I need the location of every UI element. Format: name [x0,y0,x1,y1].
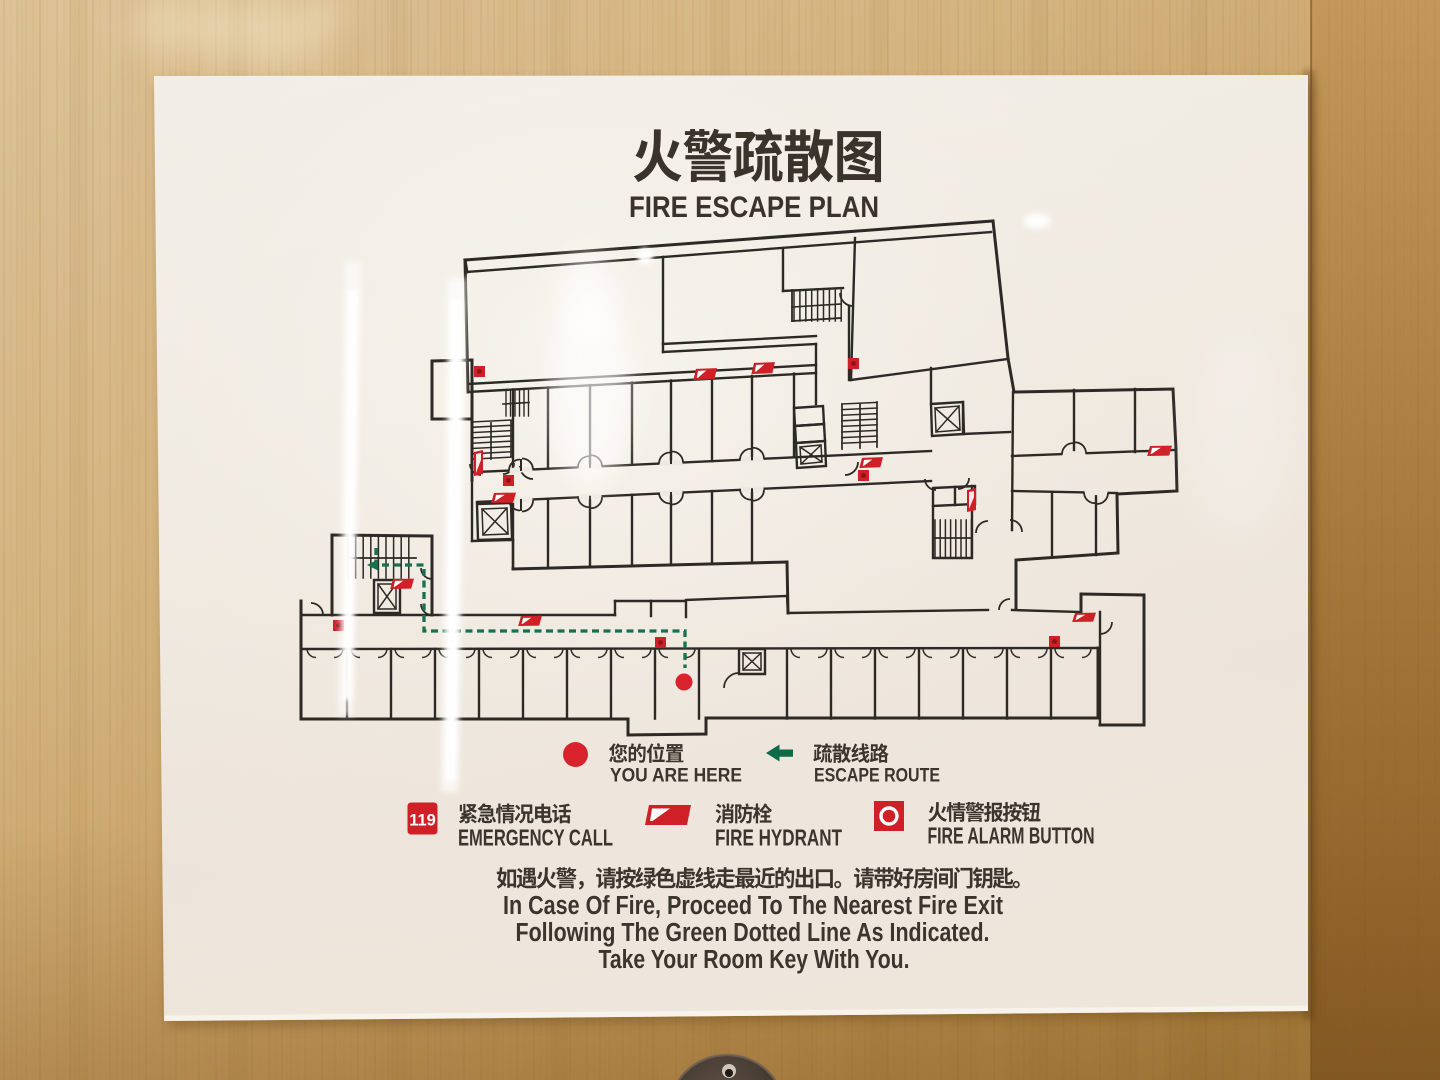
svg-text:YOU ARE HERE: YOU ARE HERE [610,765,742,787]
svg-text:FIRE ALARM BUTTON: FIRE ALARM BUTTON [928,823,1095,849]
svg-text:FIRE ESCAPE PLAN: FIRE ESCAPE PLAN [629,191,879,224]
svg-text:FIRE HYDRANT: FIRE HYDRANT [715,825,842,851]
svg-text:Following The Green Dotted Lin: Following The Green Dotted Line As Indic… [516,919,990,947]
svg-text:Take Your Room Key With You.: Take Your Room Key With You. [599,946,910,974]
svg-text:ESCAPE ROUTE: ESCAPE ROUTE [814,765,940,787]
svg-text:EMERGENCY CALL: EMERGENCY CALL [458,825,613,851]
svg-text:119: 119 [409,812,436,830]
svg-text:In Case Of Fire, Proceed To Th: In Case Of Fire, Proceed To The Nearest … [503,892,1003,920]
